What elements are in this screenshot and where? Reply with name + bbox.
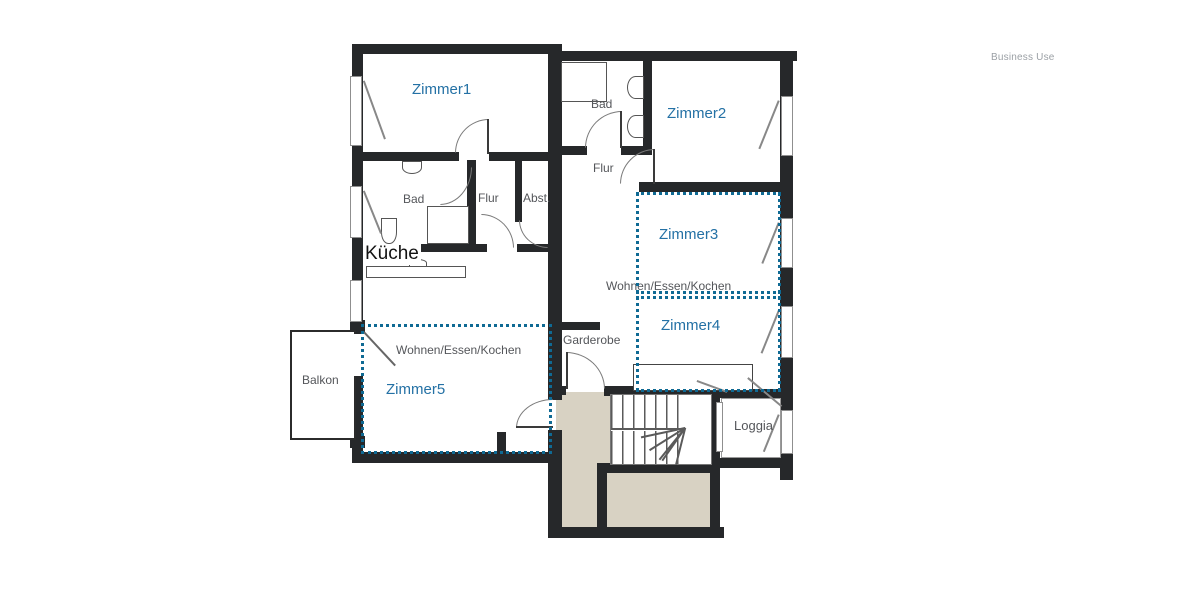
- window: [781, 96, 793, 156]
- room-label-abst: Abst.: [523, 192, 550, 205]
- toilet: [381, 218, 397, 244]
- stair-treads-upper: [611, 395, 681, 428]
- wall: [643, 60, 652, 148]
- room-label-flur-left: Flur: [478, 192, 499, 205]
- door-leaf: [566, 352, 568, 389]
- room-label-zimmer2: Zimmer2: [667, 106, 726, 123]
- wall: [552, 51, 797, 61]
- room-label-loggia: Loggia: [734, 419, 773, 433]
- door-arc: [585, 111, 622, 148]
- door-arc: [481, 214, 514, 248]
- room-label-bad-left: Bad: [403, 193, 424, 206]
- wall: [556, 322, 600, 330]
- window-swing-line: [363, 80, 386, 139]
- window: [350, 76, 362, 146]
- room-label-garderobe: Garderobe: [563, 334, 620, 347]
- room-label-balkon: Balkon: [302, 374, 339, 387]
- window: [350, 186, 362, 238]
- wall: [363, 152, 459, 161]
- window-swing-line: [759, 100, 780, 149]
- watermark: Business Use: [991, 52, 1055, 63]
- room-label-zimmer1: Zimmer1: [412, 82, 471, 99]
- wall: [597, 463, 607, 538]
- wall: [548, 527, 724, 538]
- wall: [720, 458, 788, 468]
- window: [781, 306, 793, 358]
- shower: [427, 206, 469, 244]
- room-overlay-zimmer5: [361, 324, 552, 454]
- door-leaf: [487, 119, 489, 154]
- room-overlay-zimmer4: [636, 296, 781, 392]
- window: [716, 402, 723, 452]
- sink: [627, 115, 644, 138]
- floor-plan: Zimmer1 Zimmer2 Zimmer3 Zimmer4 Zimmer5 …: [0, 0, 1200, 600]
- window: [781, 410, 793, 454]
- door-leaf: [653, 149, 655, 184]
- door-arc: [566, 352, 605, 389]
- toilet: [627, 76, 644, 99]
- window: [781, 218, 793, 268]
- room-label-bad-right: Bad: [591, 98, 612, 111]
- room-label-kueche: Küche: [363, 244, 421, 265]
- room-label-flur-right: Flur: [593, 162, 614, 175]
- door-arc: [455, 119, 489, 153]
- window-swing-line: [363, 190, 382, 233]
- door-leaf: [620, 111, 622, 148]
- wall: [639, 182, 782, 192]
- wall: [515, 160, 522, 222]
- kitchen-counter: [366, 266, 466, 278]
- room-overlay-zimmer3: [636, 192, 781, 294]
- wall: [562, 146, 587, 155]
- wall: [352, 44, 559, 54]
- sink: [402, 161, 422, 174]
- shower: [561, 62, 607, 102]
- window: [350, 280, 362, 322]
